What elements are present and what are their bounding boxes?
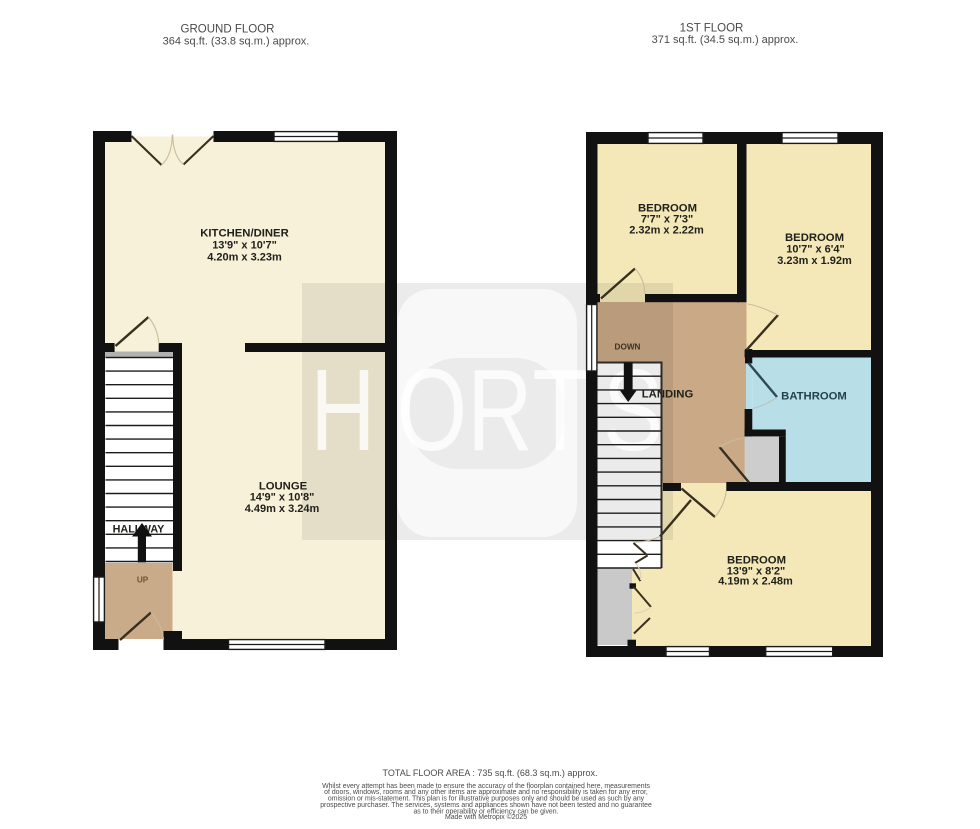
svg-text:TOTAL FLOOR AREA : 735 sq.ft.: TOTAL FLOOR AREA : 735 sq.ft. (68.3 sq.m…	[383, 768, 598, 778]
svg-text:GROUND FLOOR: GROUND FLOOR	[181, 24, 275, 36]
svg-text:BATHROOM: BATHROOM	[781, 391, 847, 403]
svg-text:H: H	[310, 346, 375, 475]
svg-text:UP: UP	[137, 575, 149, 584]
svg-text:371 sq.ft. (34.5 sq.m.) approx: 371 sq.ft. (34.5 sq.m.) approx.	[652, 34, 799, 46]
svg-text:O: O	[397, 346, 467, 475]
svg-text:KITCHEN/DINER: KITCHEN/DINER	[200, 228, 289, 240]
svg-text:S: S	[603, 346, 663, 475]
svg-text:R: R	[467, 346, 532, 475]
svg-text:LANDING: LANDING	[642, 388, 694, 400]
svg-text:4.49m x 3.24m: 4.49m x 3.24m	[245, 503, 320, 515]
svg-text:364 sq.ft. (33.8 sq.m.) approx: 364 sq.ft. (33.8 sq.m.) approx.	[163, 36, 310, 48]
svg-text:10'7" x 6'4": 10'7" x 6'4"	[786, 244, 844, 256]
svg-text:Made with Metropix ©2025: Made with Metropix ©2025	[445, 813, 527, 821]
svg-text:13'9" x 10'7": 13'9" x 10'7"	[212, 240, 277, 252]
svg-text:2.32m x 2.22m: 2.32m x 2.22m	[629, 225, 704, 237]
svg-text:1ST FLOOR: 1ST FLOOR	[680, 23, 744, 35]
svg-text:3.23m x 1.92m: 3.23m x 1.92m	[777, 255, 852, 267]
svg-text:DOWN: DOWN	[615, 343, 641, 352]
svg-text:4.20m x 3.23m: 4.20m x 3.23m	[207, 252, 282, 264]
svg-text:14'9" x 10'8": 14'9" x 10'8"	[250, 492, 315, 504]
svg-text:BEDROOM: BEDROOM	[785, 232, 844, 244]
svg-text:LOUNGE: LOUNGE	[259, 480, 308, 492]
svg-text:4.19m x 2.48m: 4.19m x 2.48m	[718, 575, 793, 587]
svg-text:T: T	[532, 346, 587, 475]
